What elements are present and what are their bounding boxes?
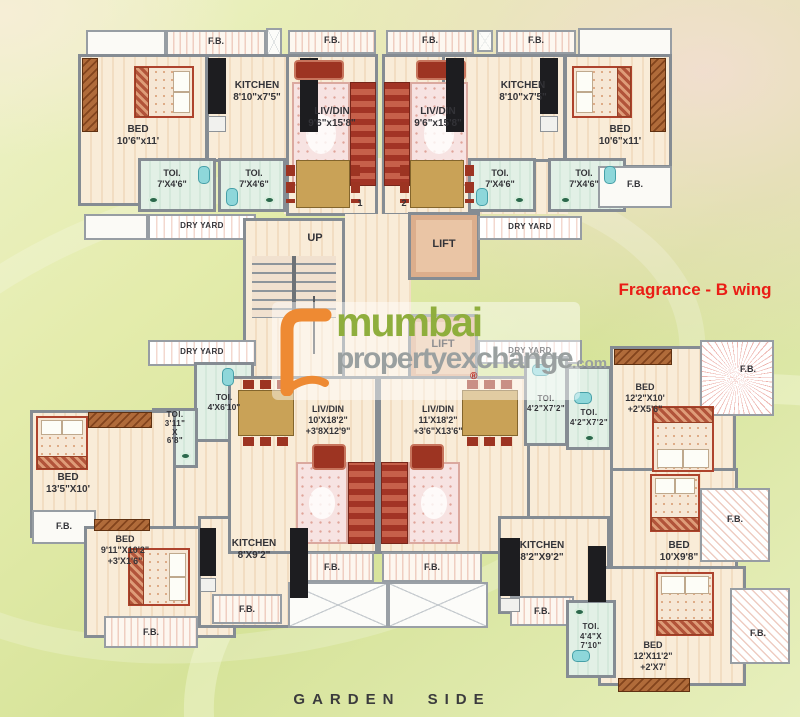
fb-label: F.B. (496, 35, 576, 46)
watermark: mumbai propertyexchange.com ® (272, 302, 580, 400)
ledge (84, 214, 148, 240)
room-label: TOI.4'4"X7'10" (566, 622, 616, 651)
washbasin-icon (574, 608, 585, 616)
fb-label: F.B. (166, 36, 266, 47)
flower-bed (730, 588, 790, 664)
bathtub-icon (226, 188, 238, 206)
fb-label: F.B. (728, 364, 768, 375)
dining-table-icon (296, 160, 350, 208)
bed-icon (656, 572, 714, 636)
dry-yard-label: DRY YARD (148, 347, 256, 357)
room-label: BED10'X9'8" (644, 540, 714, 564)
fb-label: F.B. (386, 35, 474, 46)
dining-table-icon (410, 160, 464, 208)
fb-label: F.B. (726, 628, 790, 639)
room-label: TOI.7'X4'6" (224, 168, 284, 190)
bed-icon (652, 406, 714, 472)
room-label: BED12'X11'2"+2'X7' (612, 640, 694, 672)
room-label: KITCHEN8'2"X9'2" (500, 540, 584, 564)
room-label: TOI.7'X4'6" (554, 168, 614, 190)
room-label: LIV/DIN10'X18'2"+3'8X12'9" (288, 404, 368, 436)
wing-title: Fragrance - B wing (606, 281, 784, 300)
room-label: BED12'2"X10'+2'X5'6" (608, 382, 682, 414)
fb-label: F.B. (700, 514, 770, 525)
flower-bed-sunburst (700, 340, 774, 416)
wardrobe-icon (88, 412, 152, 428)
up-label: UP (293, 232, 337, 245)
sofa-icon (294, 60, 344, 80)
room-label: BED13'5"X10' (36, 472, 100, 496)
bed-icon (650, 474, 700, 532)
bathtub-icon (476, 188, 488, 206)
registered-mark: ® (470, 372, 477, 382)
room-label: BED9'11"X10'2"+3'X1'6" (86, 534, 164, 566)
room-label: TOI.4'X6'10" (196, 392, 252, 412)
room-label: TOI.3'11"X6'8" (152, 411, 198, 446)
bed-icon (36, 416, 88, 470)
watermark-brand-bottom: propertyexchange.com (336, 344, 607, 374)
passage (528, 444, 614, 520)
dry-yard-label: DRY YARD (148, 221, 256, 231)
room-label: KITCHEN8'10"x7'5" (212, 80, 302, 104)
wardrobe-icon (82, 58, 98, 132)
unit-number: 1 (352, 198, 368, 209)
wardrobe-icon (614, 349, 672, 365)
carpet-icon (408, 462, 460, 544)
room-label: BED10'6"x11' (580, 124, 660, 148)
x-brace-box (266, 28, 282, 56)
wardrobe-icon (618, 678, 690, 692)
washbasin-icon (180, 452, 191, 460)
washbasin-icon (584, 434, 595, 442)
balcony-strip (86, 30, 166, 56)
fb-label: F.B. (288, 35, 376, 46)
room-label: LIV/DIN9'6"x15'8" (394, 106, 482, 130)
fb-label: F.B. (510, 606, 574, 617)
watermark-tld: .com (572, 355, 607, 372)
bathtub-icon (572, 650, 590, 662)
washbasin-icon (560, 196, 571, 204)
unit-number: 2 (396, 198, 412, 209)
floor-plan-canvas: F.B. F.B. F.B. F.B. F.B. BED10'6"x11' (0, 0, 800, 717)
washbasin-icon (148, 196, 159, 204)
room-label: TOI.7'X4'6" (470, 168, 530, 190)
fb-label: F.B. (290, 562, 374, 573)
fb-label: F.B. (104, 627, 198, 638)
balcony-strip (578, 28, 672, 56)
bed-icon (572, 66, 632, 118)
room-label: KITCHEN8'X9'2" (212, 538, 296, 562)
kitchen-sink (540, 116, 558, 132)
fb-label: F.B. (212, 604, 282, 615)
divan-icon (348, 462, 375, 544)
kitchen-sink (200, 578, 216, 592)
sofa-icon (312, 444, 346, 470)
bathtub-icon (222, 368, 234, 386)
washbasin-icon (514, 196, 525, 204)
room-label: BED10'6"x11' (98, 124, 178, 148)
bed-icon (134, 66, 194, 118)
dry-yard-label: DRY YARD (478, 222, 582, 232)
watermark-brand-top: mumbai (336, 302, 481, 343)
fb-label: F.B. (382, 562, 482, 573)
x-brace-terrace (388, 582, 488, 628)
property-exchange-logo-icon (278, 306, 332, 396)
garden-side-label: GARDEN SIDE (252, 691, 532, 709)
room-label: LIV/DIN9'6"x15'8" (288, 106, 376, 130)
room-label: TOI.7'X4'6" (142, 168, 202, 190)
kitchen-sink (208, 116, 226, 132)
divan-icon (381, 462, 408, 544)
wardrobe-icon (94, 519, 150, 531)
wardrobe-icon (650, 58, 666, 132)
lift-label: LIFT (408, 238, 480, 251)
washbasin-icon (264, 196, 275, 204)
fb-label: F.B. (32, 521, 96, 532)
sofa-icon (410, 444, 444, 470)
kitchen-counter (588, 546, 606, 602)
room-label: KITCHEN8'10"x7'5" (478, 80, 568, 104)
x-brace-box (477, 30, 493, 52)
room-label: LIV/DIN11'X18'2"+3'6"X13'6" (396, 404, 480, 436)
